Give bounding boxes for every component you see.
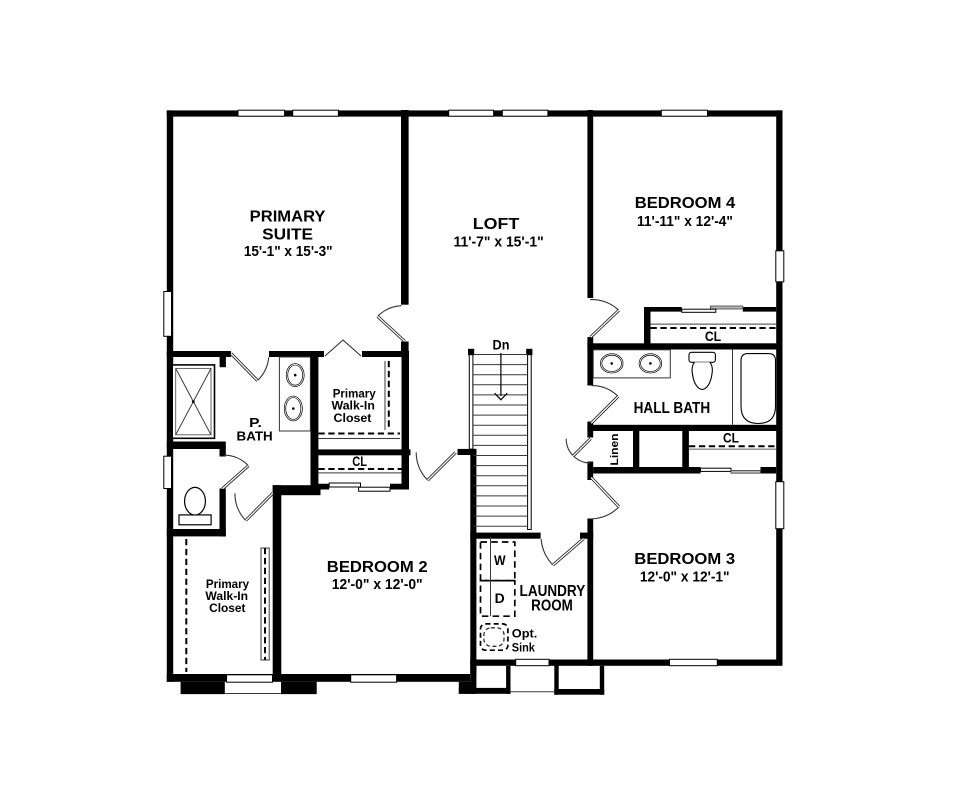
svg-text:12'-0" x 12'-0": 12'-0" x 12'-0" [332, 577, 423, 593]
svg-text:LOFT: LOFT [473, 216, 520, 233]
svg-text:Closet: Closet [209, 603, 246, 615]
svg-text:HALL BATH: HALL BATH [634, 400, 711, 417]
svg-text:11'-11" x 12'-4": 11'-11" x 12'-4" [637, 214, 733, 230]
svg-text:ROOM: ROOM [531, 598, 573, 615]
svg-text:PRIMARY: PRIMARY [250, 209, 327, 226]
svg-text:Primary: Primary [333, 389, 376, 401]
svg-text:BEDROOM 2: BEDROOM 2 [327, 559, 428, 576]
svg-text:Sink: Sink [512, 640, 535, 654]
svg-text:CL: CL [352, 454, 367, 469]
svg-text:CL: CL [705, 329, 721, 344]
svg-text:BEDROOM 3: BEDROOM 3 [634, 551, 735, 568]
svg-text:Dn: Dn [493, 338, 510, 353]
svg-text:BEDROOM 4: BEDROOM 4 [635, 195, 736, 212]
svg-text:Opt.: Opt. [512, 627, 538, 641]
svg-text:CL: CL [723, 431, 739, 446]
svg-text:Walk-In: Walk-In [332, 401, 375, 413]
svg-text:15'-1" x 15'-3": 15'-1" x 15'-3" [244, 244, 333, 260]
svg-text:11'-7" x 15'-1": 11'-7" x 15'-1" [454, 234, 544, 250]
svg-text:Linen: Linen [609, 433, 621, 465]
svg-text:Walk-In: Walk-In [205, 591, 248, 603]
svg-text:D: D [495, 590, 505, 606]
svg-text:W: W [494, 552, 506, 568]
svg-text:SUITE: SUITE [262, 227, 313, 244]
svg-text:12'-0" x 12'-1": 12'-0" x 12'-1" [640, 569, 730, 585]
svg-text:BATH: BATH [237, 429, 273, 444]
svg-text:Primary: Primary [206, 579, 250, 591]
svg-text:Closet: Closet [334, 413, 372, 425]
